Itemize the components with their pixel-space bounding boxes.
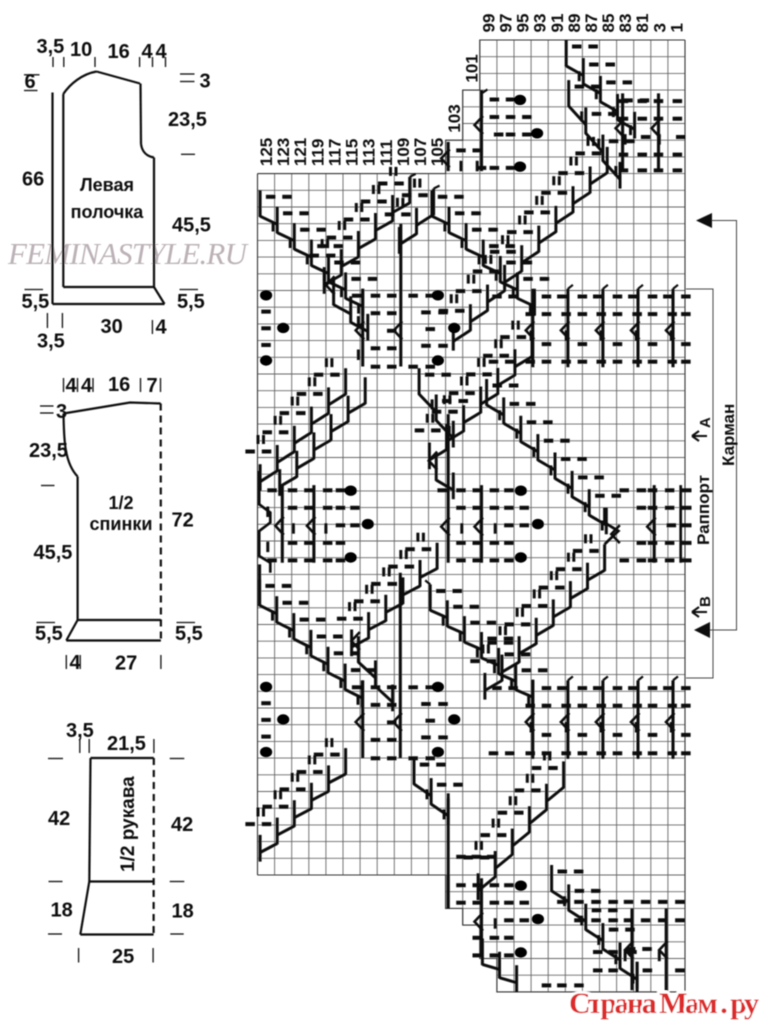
svg-text:3,5: 3,5	[66, 720, 94, 742]
svg-text:16: 16	[108, 374, 130, 396]
svg-text:16: 16	[108, 41, 130, 63]
svg-text:72: 72	[172, 510, 194, 532]
svg-text:89: 89	[565, 14, 584, 33]
svg-text:1/2 рукава: 1/2 рукава	[118, 776, 139, 872]
svg-text:FEMINASTYLE.RU: FEMINASTYLE.RU	[7, 236, 250, 271]
svg-text:1: 1	[668, 23, 687, 32]
svg-text:Раппорт: Раппорт	[694, 475, 713, 545]
svg-text:30: 30	[101, 316, 123, 338]
svg-text:18: 18	[51, 900, 73, 922]
svg-text:93: 93	[531, 14, 550, 33]
svg-text:21,5: 21,5	[107, 733, 146, 755]
svg-text:117: 117	[325, 139, 344, 166]
svg-text:3: 3	[56, 401, 67, 423]
svg-text:23,5: 23,5	[168, 109, 207, 131]
svg-text:4: 4	[156, 41, 168, 63]
svg-text:103: 103	[445, 104, 464, 132]
svg-text:A: A	[697, 417, 714, 428]
svg-text:42: 42	[171, 814, 193, 836]
svg-text:7: 7	[147, 375, 158, 397]
svg-text:27: 27	[115, 653, 137, 675]
svg-text:5,5: 5,5	[175, 623, 203, 645]
svg-text:23,5: 23,5	[29, 440, 68, 462]
svg-text:25: 25	[112, 946, 134, 968]
svg-text:5,5: 5,5	[35, 623, 63, 645]
svg-text:45,5: 45,5	[34, 542, 73, 564]
svg-text:3: 3	[650, 23, 669, 32]
svg-text:101: 101	[462, 54, 481, 82]
svg-text:3,5: 3,5	[37, 36, 65, 58]
svg-text:4: 4	[81, 375, 93, 397]
svg-text:3,5: 3,5	[37, 331, 65, 353]
svg-text:6: 6	[25, 71, 36, 93]
svg-text:Карман: Карман	[719, 404, 738, 466]
svg-text:4: 4	[156, 317, 168, 339]
svg-text:121: 121	[291, 138, 310, 166]
svg-text:B: B	[697, 596, 714, 607]
svg-text:4: 4	[142, 41, 154, 63]
svg-text:105: 105	[428, 138, 447, 166]
svg-text:18: 18	[172, 901, 194, 923]
svg-text:5,5: 5,5	[22, 291, 50, 313]
svg-text:спинки: спинки	[90, 514, 153, 534]
svg-text:полочка: полочка	[71, 202, 145, 222]
svg-text:Страна Мам . ру: Страна Мам . ру	[569, 987, 759, 1020]
svg-text:Левая: Левая	[80, 175, 134, 195]
svg-text:10: 10	[70, 39, 92, 61]
svg-text:1/2: 1/2	[108, 493, 133, 513]
svg-text:66: 66	[22, 169, 44, 191]
svg-text:4: 4	[66, 375, 78, 397]
svg-text:3: 3	[200, 71, 211, 93]
svg-text:42: 42	[48, 808, 70, 830]
svg-text:107: 107	[411, 138, 430, 166]
svg-text:45,5: 45,5	[172, 215, 211, 237]
svg-text:5,5: 5,5	[177, 291, 205, 313]
